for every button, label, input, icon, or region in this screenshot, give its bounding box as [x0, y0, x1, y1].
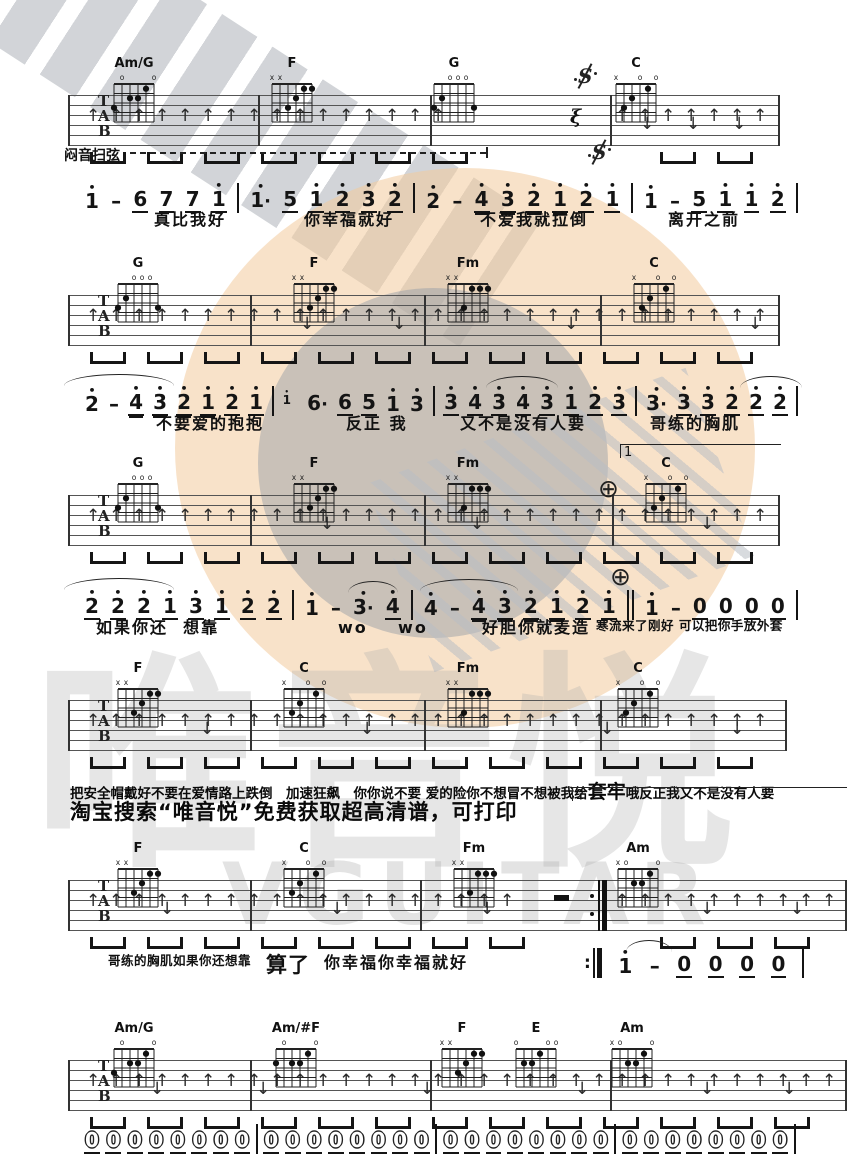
strum-arrow-down-icon: ↓ [564, 316, 578, 333]
strum-arrow-up-icon: ↑ [408, 108, 422, 125]
mute-strum-dash-line [130, 152, 486, 154]
notation-token: •3· [645, 392, 668, 416]
chord-diagram: Fxx [286, 256, 342, 331]
notation-barline [802, 948, 804, 978]
notation-token: 0 [550, 1129, 566, 1154]
notation-token: 6· [306, 392, 329, 416]
strum-arrow-up-icon: ↑ [408, 508, 422, 525]
notation-line: :•1–0000 [584, 948, 804, 978]
svg-text:o: o [148, 473, 153, 482]
lyric-segment: 哥练的胸肌如果你还想靠 [108, 955, 251, 968]
rhythm-beam [660, 152, 696, 164]
strum-arrow-up-icon: ↑ [270, 508, 284, 525]
notation-token: •1 [84, 190, 100, 213]
notation-token: •3 [497, 595, 513, 620]
notation-token: •3 [611, 391, 627, 416]
svg-text:o: o [120, 73, 125, 82]
tab-letter: B [98, 524, 111, 539]
svg-text:x: x [116, 678, 121, 687]
strum-arrow-up-icon: ↑ [730, 1073, 744, 1090]
strum-arrow-up-icon: ↑ [776, 893, 790, 910]
svg-text:x: x [282, 678, 287, 687]
notation-token: •2 [240, 595, 256, 620]
lyric-segment: 反正 我 [346, 416, 408, 432]
measure-barline [424, 295, 426, 346]
chord-diagram: Fxx [110, 661, 166, 736]
rhythm-beam [660, 552, 696, 564]
notation-token: •3 [443, 391, 459, 416]
staff-line [68, 1100, 845, 1101]
measure-barline [778, 495, 780, 546]
notation-token: 5 [282, 188, 298, 213]
rhythm-beam [489, 352, 525, 364]
strum-arrow-up-icon: ↑ [546, 308, 560, 325]
strum-arrow-up-icon: ↑ [546, 713, 560, 730]
svg-text:o: o [152, 1038, 157, 1047]
notation-token: •1 [162, 595, 178, 620]
chord-label: F [286, 256, 342, 271]
tab-staff [68, 700, 785, 751]
strum-arrow-up-icon: ↑ [178, 893, 192, 910]
strum-arrow-up-icon: ↑ [178, 713, 192, 730]
svg-text:x: x [446, 273, 451, 282]
notation-token: •2 [772, 391, 788, 416]
notation-barline [272, 386, 274, 416]
strum-arrow-up-icon: ↑ [201, 308, 215, 325]
notation-token: 0 [770, 595, 786, 620]
strum-arrow-down-icon: ↓ [330, 901, 344, 918]
rhythm-beam [546, 352, 582, 364]
strum-arrow-up-icon: ↑ [592, 308, 606, 325]
svg-text:o: o [514, 1038, 519, 1047]
notation-token: •1 [214, 595, 230, 620]
measure-barline [68, 295, 70, 346]
lyric-segment: 寒流来了刚好 可以把你手放外套 [596, 620, 783, 633]
chord-grid: xx [446, 856, 502, 916]
strum-arrow-up-icon: ↑ [730, 893, 744, 910]
notation-token: 0 [170, 1129, 186, 1154]
svg-text:o: o [640, 678, 645, 687]
strum-arrow-up-icon: ↑ [201, 108, 215, 125]
measure-barline [68, 1060, 70, 1111]
strum-arrow-up-icon: ↑ [362, 508, 376, 525]
svg-text:x: x [270, 73, 275, 82]
notation-token: •3 [676, 391, 692, 416]
chord-grid: oo [106, 71, 162, 131]
notation-token: – [670, 597, 682, 620]
rhythm-beam [375, 937, 411, 949]
notation-barline [256, 1124, 258, 1154]
svg-text:x: x [452, 858, 457, 867]
measure-barline [778, 295, 780, 346]
strum-arrow-up-icon: ↑ [730, 508, 744, 525]
svg-text:o: o [546, 1038, 551, 1047]
notation-token: 0 [571, 1129, 587, 1154]
svg-text:o: o [322, 678, 327, 687]
chord-diagram: Cxoo [276, 661, 332, 736]
chord-diagram: Cxoo [610, 661, 666, 736]
rhythm-beam [660, 757, 696, 769]
strum-arrow-up-icon: ↑ [523, 508, 537, 525]
staff-line [68, 740, 785, 741]
notation-line: •2–•4•3•2•1•2•1•16·65•1•3•3•4•3•4•3•1•2•… [84, 386, 798, 416]
strum-arrow-up-icon: ↑ [408, 308, 422, 325]
rhythm-beam [432, 757, 468, 769]
notation-token: – [108, 393, 120, 416]
measure-barline [68, 700, 70, 751]
notation-token: 0 [772, 1129, 788, 1154]
staff-line [68, 545, 778, 546]
strum-arrow-down-icon: ↓ [420, 1081, 434, 1098]
notation-token: •1 [549, 595, 565, 620]
chord-label: G [426, 56, 482, 71]
svg-text:x: x [454, 473, 459, 482]
lyric-segment: 离开之前 [668, 212, 740, 228]
chord-label: C [276, 841, 332, 856]
svg-text:o: o [684, 473, 689, 482]
strum-arrow-down-icon: ↓ [686, 116, 700, 133]
notation-token: •2 [266, 595, 282, 620]
rhythm-beam [603, 757, 639, 769]
coda-icon: ⊕ [610, 564, 631, 589]
strum-arrow-up-icon: ↑ [178, 308, 192, 325]
notation-token: •2 [84, 393, 100, 416]
notation-token: •1 [643, 190, 659, 213]
notation-token: 0 [443, 1129, 459, 1154]
chord-diagram: Cxoo [638, 456, 694, 531]
strum-arrow-up-icon: ↑ [270, 308, 284, 325]
lyric-segment: 你幸福就好 [304, 212, 394, 228]
notation-token: •2 [575, 595, 591, 620]
notation-token: 0 [234, 1129, 250, 1154]
rhythm-beam [717, 152, 753, 164]
strum-arrow-up-icon: ↑ [684, 308, 698, 325]
chord-label: Am/G [106, 1021, 162, 1036]
strum-arrow-up-icon: ↑ [753, 713, 767, 730]
svg-text:o: o [282, 1038, 287, 1047]
rhythm-beam [717, 757, 753, 769]
strum-arrow-up-icon: ↑ [753, 508, 767, 525]
svg-text:o: o [132, 473, 137, 482]
strum-arrow-up-icon: ↑ [201, 508, 215, 525]
strum-arrow-down-icon: ↓ [732, 116, 746, 133]
strum-arrow-up-icon: ↑ [362, 893, 376, 910]
chord-grid: oo [106, 1036, 162, 1096]
slur-arc [740, 376, 802, 388]
lyric-segment: wo wo [338, 620, 428, 636]
strum-arrow-up-icon: ↑ [224, 713, 238, 730]
notation-token: 0 [213, 1129, 229, 1154]
staff-line [68, 1110, 845, 1111]
rhythm-beam [375, 757, 411, 769]
svg-text:o: o [140, 473, 145, 482]
measure-barline [778, 95, 780, 146]
svg-text:o: o [306, 678, 311, 687]
notation-token: 0 [622, 1129, 638, 1154]
strum-arrow-up-icon: ↑ [224, 893, 238, 910]
chord-diagram: Fmxx [440, 456, 496, 531]
staff-line [68, 920, 845, 921]
notation-token: •3 [491, 391, 507, 416]
strum-arrow-up-icon: ↑ [431, 893, 445, 910]
strum-arrow-up-icon: ↑ [500, 893, 514, 910]
notation-line: •1–677•1•1·5•1•2•3•2•2–•4•3•2•1•2•1•1–5•… [84, 183, 798, 213]
measure-barline [845, 1060, 847, 1111]
rhythm-beam [546, 757, 582, 769]
svg-text:o: o [152, 73, 157, 82]
strum-arrow-up-icon: ↑ [684, 893, 698, 910]
notation-token: 0 [686, 1129, 702, 1154]
notation-token: •1 [617, 955, 633, 978]
chord-grid: ooo [508, 1036, 564, 1096]
staff-line [68, 730, 785, 731]
notation-token: 0 [84, 1129, 100, 1154]
lyric-segment: 哥练的胸肌 [650, 416, 740, 432]
svg-text:x: x [616, 858, 621, 867]
notation-barline [796, 386, 798, 416]
promo-text: 淘宝搜索“唯音悦”免费获取超高清谱，可打印 [70, 796, 518, 826]
staff-line [68, 135, 778, 136]
strum-arrow-up-icon: ↑ [569, 713, 583, 730]
chord-diagram: Amxoo [604, 1021, 660, 1096]
lyric-segment: 好胆你就麦造 [482, 620, 590, 636]
strum-arrow-up-icon: ↑ [224, 308, 238, 325]
rhythm-beam [717, 552, 753, 564]
notation-token: 0 [127, 1129, 143, 1154]
notation-token: •3· [352, 596, 375, 620]
notation-token: •2 [587, 391, 603, 416]
notation-barline [411, 590, 413, 620]
notation-token: •1 [644, 597, 660, 620]
notation-token: •1· [249, 189, 272, 213]
strum-arrow-up-icon: ↑ [523, 308, 537, 325]
svg-text:x: x [282, 858, 287, 867]
staff-line [68, 720, 785, 721]
chord-label: C [608, 56, 664, 71]
svg-text:x: x [440, 1038, 445, 1047]
chord-label: C [626, 256, 682, 271]
rhythm-beam [717, 352, 753, 364]
measure-barline [424, 495, 426, 546]
coda-icon: ⊕ [598, 476, 619, 501]
strum-arrow-up-icon: ↑ [247, 308, 261, 325]
chord-label: F [110, 841, 166, 856]
rhythm-beam [375, 352, 411, 364]
chord-label: Fm [446, 841, 502, 856]
svg-text:o: o [672, 273, 677, 282]
volta-number: 1 [624, 445, 632, 460]
strum-arrow-up-icon: ↑ [822, 893, 836, 910]
notation-barline [433, 386, 435, 416]
svg-text:x: x [614, 73, 619, 82]
strum-arrow-up-icon: ↑ [500, 308, 514, 325]
notation-token: •1 [282, 393, 292, 407]
strum-arrow-up-icon: ↑ [385, 508, 399, 525]
rhythm-beam [90, 937, 126, 949]
chord-grid: oo [268, 1036, 324, 1096]
tab-letter: B [98, 324, 111, 339]
notation-barline [794, 1124, 796, 1154]
svg-text:o: o [668, 473, 673, 482]
lyric-segment: 你幸福你幸福就好 [324, 955, 468, 971]
svg-text:o: o [322, 858, 327, 867]
rhythm-beam [660, 352, 696, 364]
rhythm-beam [147, 757, 183, 769]
chord-label: Fm [440, 456, 496, 471]
strum-arrow-up-icon: ↑ [707, 308, 721, 325]
chord-diagram: Gooo [110, 256, 166, 331]
svg-text:x: x [124, 678, 129, 687]
strum-arrow-up-icon: ↑ [224, 1073, 238, 1090]
notation-token: 6 [132, 188, 148, 213]
strum-arrow-up-icon: ↑ [178, 108, 192, 125]
chord-label: C [610, 661, 666, 676]
measure-barline [68, 95, 70, 146]
chord-grid: xoo [638, 471, 694, 531]
chord-label: F [264, 56, 320, 71]
rhythm-beam [147, 552, 183, 564]
strum-arrow-up-icon: ↑ [362, 308, 376, 325]
notation-token: 0 [191, 1129, 207, 1154]
rhythm-beam [318, 757, 354, 769]
strum-arrow-up-icon: ↑ [339, 713, 353, 730]
strum-arrow-up-icon: ↑ [362, 1073, 376, 1090]
notation-token: 0 [464, 1129, 480, 1154]
chord-diagram: Cxoo [626, 256, 682, 331]
chord-label: Am [604, 1021, 660, 1036]
rhythm-beam [204, 757, 240, 769]
svg-text:x: x [454, 678, 459, 687]
volta-bracket: 1 [620, 444, 781, 458]
notation-token: •4 [385, 595, 401, 620]
chord-diagram: Fxx [110, 841, 166, 916]
strum-arrow-up-icon: ↑ [730, 308, 744, 325]
chord-grid: xx [286, 471, 342, 531]
rhythm-beam [318, 552, 354, 564]
svg-text:x: x [124, 858, 129, 867]
notation-token: •1 [385, 393, 401, 416]
strum-arrow-down-icon: ↓ [700, 516, 714, 533]
slur-arc [64, 578, 174, 590]
staff-line [68, 95, 778, 96]
notation-token: •1 [200, 391, 216, 416]
chord-diagram: Gooo [426, 56, 482, 131]
chord-label: Fm [440, 256, 496, 271]
svg-text:x: x [610, 1038, 615, 1047]
strum-arrow-up-icon: ↑ [799, 1073, 813, 1090]
rhythm-beam [90, 352, 126, 364]
chord-label: Am/G [106, 56, 162, 71]
strum-arrow-down-icon: ↓ [700, 901, 714, 918]
notation-token: 0 [718, 595, 734, 620]
notation-token: •4 [467, 391, 483, 416]
staff-line [68, 710, 785, 711]
chord-diagram: Am/#Foo [268, 1021, 324, 1096]
chord-grid: xoo [626, 271, 682, 331]
notation-token: 0 [328, 1129, 344, 1154]
measure-barline [845, 880, 847, 931]
staff-line [68, 750, 785, 751]
notation-barline [435, 1124, 437, 1154]
notation-token: •1 [304, 597, 320, 620]
lyric-segment: 又不是没有人要 [460, 416, 586, 432]
chord-grid: xx [264, 71, 320, 131]
svg-text:x: x [300, 273, 305, 282]
notation-token: •2 [224, 391, 240, 416]
strum-arrow-up-icon: ↑ [684, 1073, 698, 1090]
notation-token: 0 [507, 1129, 523, 1154]
strum-arrow-down-icon: ↓ [748, 316, 762, 333]
strum-arrow-down-icon: ↓ [200, 721, 214, 738]
chord-grid: xoo [610, 676, 666, 736]
staff-line [68, 145, 778, 146]
svg-text:o: o [638, 73, 643, 82]
strum-arrow-up-icon: ↑ [178, 508, 192, 525]
strum-arrow-up-icon: ↑ [707, 108, 721, 125]
chord-label: Am/#F [268, 1021, 324, 1036]
slur-arc [64, 374, 174, 386]
notation-token: 0 [285, 1129, 301, 1154]
notation-token: 0 [414, 1129, 430, 1154]
strum-arrow-up-icon: ↑ [385, 713, 399, 730]
staff-line [68, 700, 785, 701]
chord-diagram: Am/Goo [106, 1021, 162, 1096]
notation-token: 0 [708, 953, 724, 978]
svg-text:o: o [464, 73, 469, 82]
chord-grid: xoo [608, 71, 664, 131]
notation-token: 0 [105, 1129, 121, 1154]
chord-grid: xoo [610, 856, 666, 916]
svg-text:o: o [554, 1038, 559, 1047]
rhythm-beam [432, 552, 468, 564]
strum-arrow-up-icon: ↑ [753, 1073, 767, 1090]
notation-token: 0 [528, 1129, 544, 1154]
notation-barline [413, 183, 415, 213]
notation-token: •4 [515, 391, 531, 416]
notation-token: 6 [337, 391, 353, 416]
chord-grid: xx [440, 271, 496, 331]
rhythm-beam [261, 937, 297, 949]
rhythm-beam [204, 937, 240, 949]
chord-label: C [276, 661, 332, 676]
staff-line [68, 535, 778, 536]
chord-diagram: Cxoo [608, 56, 664, 131]
notation-token: 0 [676, 953, 692, 978]
slur-arc [420, 579, 518, 591]
segno-icon: S [576, 64, 594, 90]
strum-arrow-up-icon: ↑ [592, 508, 606, 525]
rhythm-beam [261, 757, 297, 769]
rhythm-beam [318, 937, 354, 949]
strum-arrow-up-icon: ↑ [408, 713, 422, 730]
strum-arrow-down-icon: ↓ [575, 1081, 589, 1098]
rhythm-beam [489, 757, 525, 769]
notation-token: 0 [729, 1129, 745, 1154]
measure-barline [785, 700, 787, 751]
volta-bracket: 2 [572, 787, 847, 801]
notation-token: •4 [423, 597, 439, 620]
chord-diagram: Gooo [110, 456, 166, 531]
rhythm-beam [432, 352, 468, 364]
rhythm-beam [432, 937, 468, 949]
tab-letter: B [98, 729, 111, 744]
chord-label: F [286, 456, 342, 471]
notation-repeat-end: : [584, 948, 602, 978]
slur-arc [348, 581, 398, 593]
quarter-rest-icon: ξ [570, 106, 581, 128]
svg-text:o: o [618, 1038, 623, 1047]
half-rest-icon [554, 895, 569, 901]
